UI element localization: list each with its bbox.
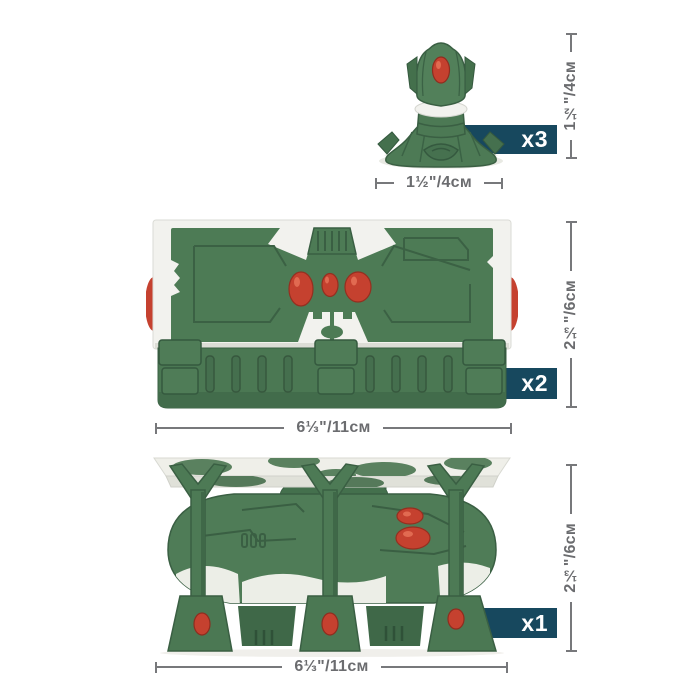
dimension-line — [383, 427, 510, 429]
dimension-line — [157, 666, 282, 668]
dimension-cap — [510, 423, 512, 434]
height-dimension-landing-pad: 2⅓"/6см — [561, 464, 581, 652]
width-dimension-turret: 1½"/4см — [375, 174, 503, 192]
dimension-cap — [506, 662, 508, 673]
dimension-line — [570, 223, 572, 271]
dimension-line — [570, 602, 572, 650]
dimension-cap — [501, 178, 503, 189]
landing-pad-model — [146, 446, 518, 658]
width-dimension-bunker: 6⅓"/11см — [155, 419, 512, 437]
dimension-line — [157, 427, 284, 429]
count-badge-label: x1 — [521, 610, 548, 637]
dimension-cap — [566, 406, 577, 408]
width-dimension-label: 6⅓"/11см — [294, 658, 368, 676]
dimension-line — [570, 140, 572, 157]
count-badge-label: x3 — [521, 126, 548, 153]
width-dimension-label: 6⅓"/11см — [296, 419, 370, 437]
height-dimension-label: 2⅓"/6см — [562, 523, 580, 593]
terrain-dimensions-diagram: x3 1½"/4см — [0, 0, 700, 700]
dimension-line — [570, 358, 572, 406]
turret-base — [378, 110, 504, 169]
dimension-line — [377, 182, 394, 184]
dimension-line — [484, 182, 501, 184]
turret-red-light — [433, 57, 450, 83]
width-dimension-label: 1½"/4см — [406, 174, 472, 192]
dimension-line — [570, 466, 572, 514]
count-badge-label: x2 — [521, 370, 548, 397]
height-dimension-turret: 1½"/4см — [561, 33, 581, 159]
pad-feet — [168, 596, 496, 651]
bunker-wall — [158, 340, 506, 408]
height-dimension-label: 2⅓"/6см — [562, 280, 580, 350]
dimension-line — [570, 35, 572, 52]
dimension-cap — [566, 650, 577, 652]
width-dimension-landing-pad: 6⅓"/11см — [155, 658, 508, 676]
height-dimension-bunker: 2⅓"/6см — [561, 221, 581, 408]
bunker-roof — [153, 220, 511, 349]
gun-turret-model — [368, 20, 514, 172]
height-dimension-label: 1½"/4см — [562, 61, 580, 131]
dimension-cap — [566, 157, 577, 159]
bunker-model — [146, 214, 518, 416]
dimension-line — [381, 666, 506, 668]
